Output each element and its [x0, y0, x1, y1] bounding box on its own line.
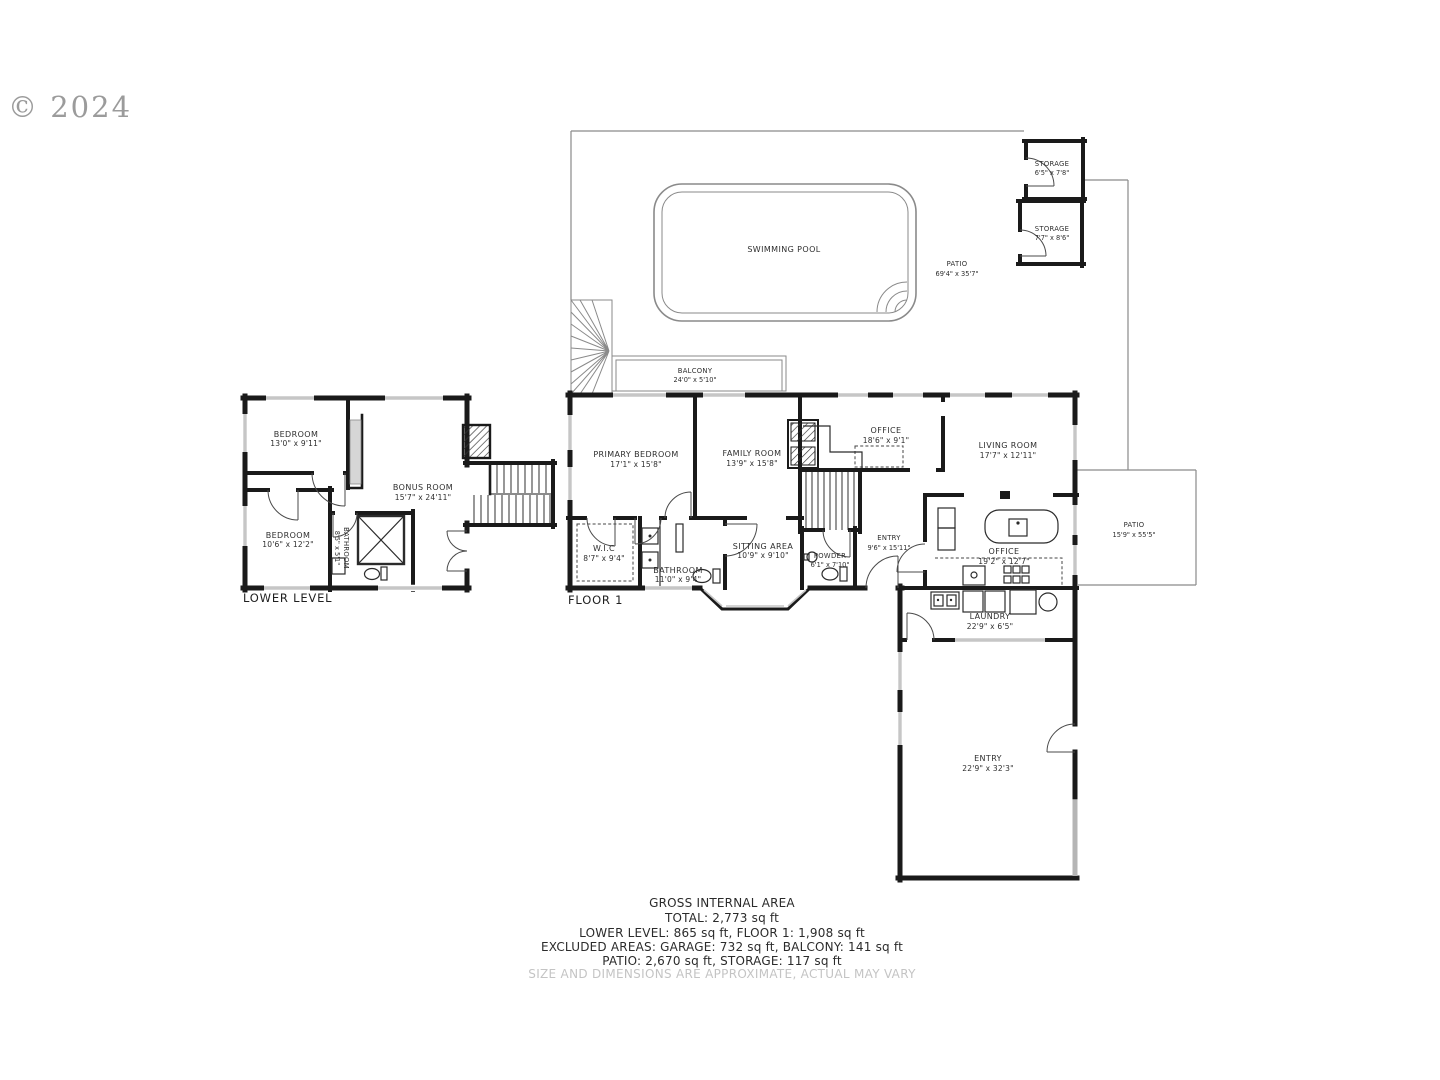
floor1-title: FLOOR 1	[568, 593, 623, 607]
washer-icon	[963, 591, 983, 612]
ll-bonus-room-label: BONUS ROOM	[393, 483, 453, 492]
pool-steps-icon	[877, 282, 907, 312]
entry-hall-label: ENTRY	[877, 534, 901, 542]
patio-top-dims: 69'4" x 35'7"	[936, 270, 979, 278]
toilet-icon	[822, 568, 838, 580]
storage-lower-label: STORAGE	[1035, 225, 1069, 233]
wall-column	[1000, 491, 1010, 499]
ll-bathroom-label: BATHROOM	[342, 527, 350, 569]
copyright-text: © 2024	[8, 90, 132, 124]
sitting-area-label: SITTING AREA	[733, 542, 794, 551]
patio-right-dims: 15'9" x 55'5"	[1113, 531, 1156, 539]
floor1-stairs	[806, 472, 854, 530]
footer-disclaimer: SIZE AND DIMENSIONS ARE APPROXIMATE, ACT…	[528, 967, 916, 981]
closet-sliding-doors	[350, 420, 361, 484]
ll-bedroom-top-dims: 13'0" x 9'11"	[270, 439, 321, 448]
toilet-icon	[365, 569, 380, 580]
storage-rooms	[1018, 139, 1085, 266]
garage-entry-dims: 22'9" x 32'3"	[962, 764, 1013, 773]
storage-upper-dims: 6'5" x 7'8"	[1035, 169, 1070, 177]
wic-label: W.I.C	[593, 544, 615, 553]
powder-dims: 6'1" x 7'10"	[811, 561, 850, 569]
patio-right-label: PATIO	[1124, 521, 1145, 529]
stove-icon	[1004, 566, 1029, 583]
lower-level-stairs	[463, 425, 555, 527]
storage-upper-label: STORAGE	[1035, 160, 1069, 168]
ll-bathroom-dims: 8'5" x 5'1"	[333, 531, 341, 566]
wic-dims: 8'7" x 9'4"	[583, 554, 625, 563]
kitchen-island	[985, 510, 1058, 543]
footer-patio-storage: PATIO: 2,670 sq ft, STORAGE: 117 sq ft	[602, 954, 842, 968]
family-room-label: FAMILY ROOM	[723, 449, 782, 458]
entry-hall-dims: 9'6" x 15'11"	[868, 544, 911, 552]
garage-entry-label: ENTRY	[974, 754, 1002, 763]
swimming-pool-label: SWIMMING POOL	[747, 245, 820, 254]
floor-plan-svg: © 2024 SWIMMING POOL PATIO 69'4" x 35'7"…	[0, 0, 1440, 1080]
balcony-label: BALCONY	[678, 367, 713, 375]
bay-window-glazing	[704, 590, 806, 606]
laundry-dims: 22'9" x 6'5"	[967, 622, 1014, 631]
office-upper-label: OFFICE	[871, 426, 902, 435]
footer-levels: LOWER LEVEL: 865 sq ft, FLOOR 1: 1,908 s…	[579, 926, 865, 940]
sitting-area-dims: 10'9" x 9'10"	[737, 551, 788, 560]
dryer-icon	[985, 591, 1005, 612]
f1-bathroom-label: BATHROOM	[653, 566, 703, 575]
footer-title: GROSS INTERNAL AREA	[649, 896, 795, 910]
ll-bedroom-top-label: BEDROOM	[274, 430, 319, 439]
storage-lower-dims: 7'7" x 8'6"	[1035, 234, 1070, 242]
appliance-icon	[1010, 590, 1036, 614]
spiral-staircase	[571, 300, 612, 394]
ll-bonus-room-dims: 15'7" x 24'11"	[395, 493, 451, 502]
lower-level-title: LOWER LEVEL	[243, 591, 332, 605]
powder-label: POWDER	[814, 552, 846, 560]
living-room-dims: 17'7" x 12'11"	[980, 451, 1036, 460]
laundry-fixtures	[931, 590, 1057, 614]
kitchen-office-label: OFFICE	[989, 547, 1020, 556]
office-upper-dims: 18'6" x 9'1"	[863, 436, 910, 445]
footer-area-summary: GROSS INTERNAL AREA TOTAL: 2,773 sq ft L…	[528, 896, 916, 981]
family-room-dims: 13'9" x 15'8"	[726, 459, 777, 468]
ll-bedroom-bottom-dims: 10'6" x 12'2"	[262, 540, 313, 549]
fireplace	[788, 420, 818, 468]
shower-door	[676, 524, 683, 552]
utility-basin-icon	[1039, 593, 1057, 611]
primary-bedroom-dims: 17'1" x 15'8"	[610, 460, 661, 469]
laundry-label: LAUNDRY	[970, 612, 1011, 621]
balcony-dims: 24'0" x 5'10"	[674, 376, 717, 384]
ll-bedroom-bottom-label: BEDROOM	[266, 531, 311, 540]
kitchen-office-dims: 19'2" x 12'7"	[978, 557, 1029, 566]
living-room-label: LIVING ROOM	[979, 441, 1038, 450]
patio-top-label: PATIO	[947, 260, 968, 268]
primary-bedroom-label: PRIMARY BEDROOM	[593, 450, 678, 459]
chimney-hatch	[463, 425, 490, 458]
footer-total: TOTAL: 2,773 sq ft	[664, 911, 779, 925]
floor-plan-page: © 2024 SWIMMING POOL PATIO 69'4" x 35'7"…	[0, 0, 1440, 1080]
footer-excluded: EXCLUDED AREAS: GARAGE: 732 sq ft, BALCO…	[541, 940, 903, 954]
f1-bathroom-dims: 11'0" x 9'4"	[655, 575, 702, 584]
labels: © 2024 SWIMMING POOL PATIO 69'4" x 35'7"…	[8, 90, 1155, 773]
